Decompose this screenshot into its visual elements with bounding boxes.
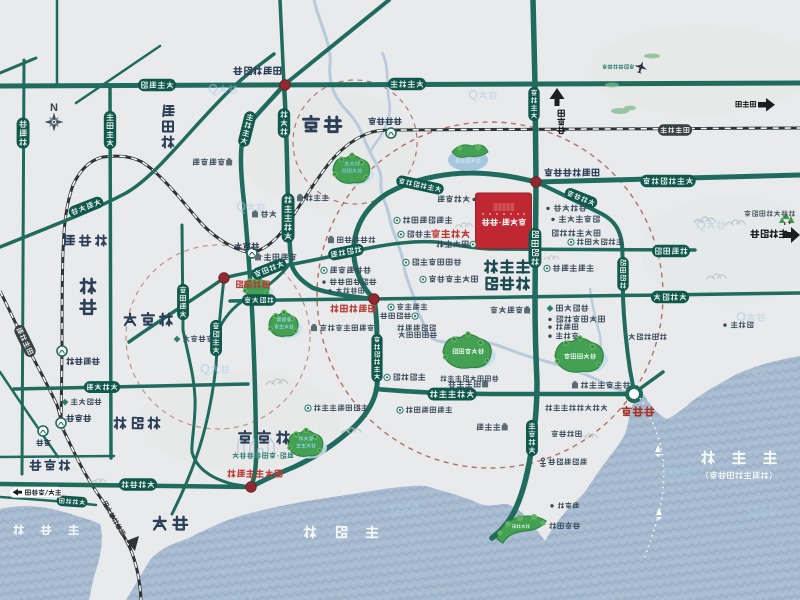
svg-text:Q: Q [208, 81, 218, 96]
svg-text:Q: Q [468, 87, 478, 102]
svg-text:N: N [50, 102, 58, 114]
svg-text:Q: Q [236, 199, 246, 214]
svg-text:Q: Q [200, 361, 210, 376]
svg-text:Q: Q [748, 503, 758, 518]
svg-text:Q: Q [696, 217, 706, 232]
svg-text:Q: Q [662, 464, 672, 479]
svg-text:Q: Q [390, 501, 400, 516]
svg-text:Q: Q [736, 309, 746, 324]
